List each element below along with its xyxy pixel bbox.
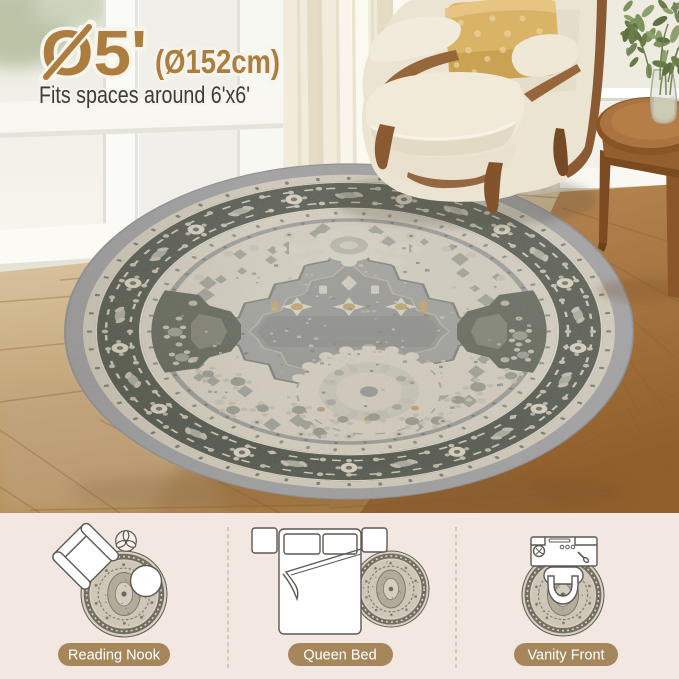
svg-text:(Ø152cm): (Ø152cm) <box>155 43 280 80</box>
svg-text:Vanity Front: Vanity Front <box>527 648 604 664</box>
svg-text:Fits spaces around 6'x6': Fits spaces around 6'x6' <box>39 82 250 109</box>
svg-text:Queen Bed: Queen Bed <box>303 648 376 664</box>
svg-text:Reading Nook: Reading Nook <box>68 648 161 664</box>
